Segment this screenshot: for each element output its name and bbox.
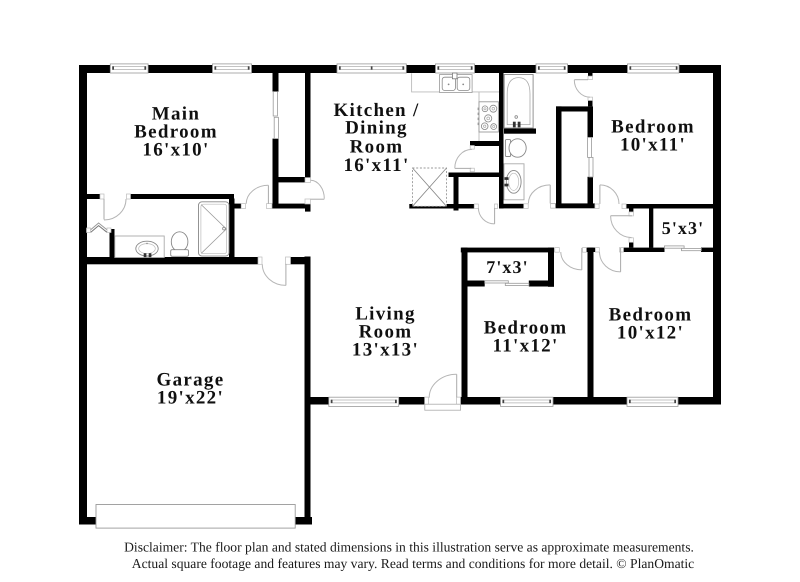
svg-text:Actual square footage and feat: Actual square footage and features may v… (132, 556, 694, 571)
svg-text:10'x11': 10'x11' (620, 134, 686, 155)
svg-text:10'x12': 10'x12' (617, 323, 684, 344)
svg-text:16'x10': 16'x10' (142, 139, 209, 160)
svg-text:Dining: Dining (345, 118, 408, 139)
svg-text:7'x3': 7'x3' (486, 257, 529, 277)
svg-text:11'x12': 11'x12' (492, 336, 558, 357)
svg-text:16'x11': 16'x11' (343, 155, 409, 176)
svg-text:19'x22': 19'x22' (157, 388, 224, 409)
svg-text:Disclaimer: The floor plan and: Disclaimer: The floor plan and stated di… (124, 540, 694, 555)
svg-text:13'x13': 13'x13' (352, 340, 419, 361)
svg-text:5'x3': 5'x3' (662, 218, 705, 238)
